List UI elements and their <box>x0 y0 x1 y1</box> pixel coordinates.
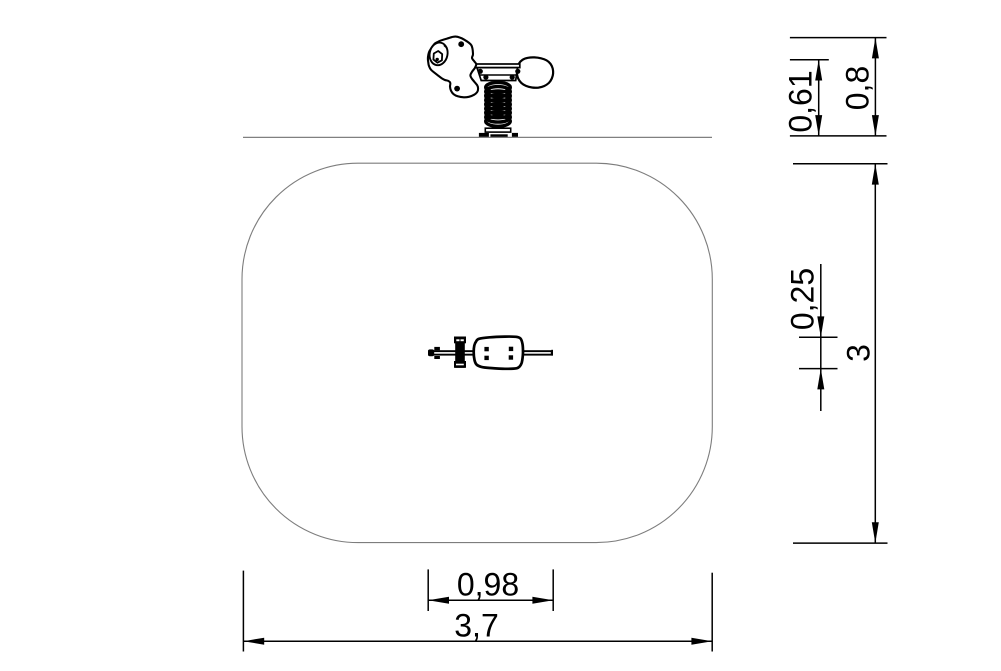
svg-text:3,7: 3,7 <box>454 607 498 643</box>
svg-text:0,61: 0,61 <box>783 70 819 132</box>
svg-text:0,8: 0,8 <box>840 66 876 110</box>
svg-text:0,25: 0,25 <box>785 268 821 330</box>
svg-text:3: 3 <box>841 344 877 362</box>
svg-text:0,98: 0,98 <box>457 567 519 603</box>
